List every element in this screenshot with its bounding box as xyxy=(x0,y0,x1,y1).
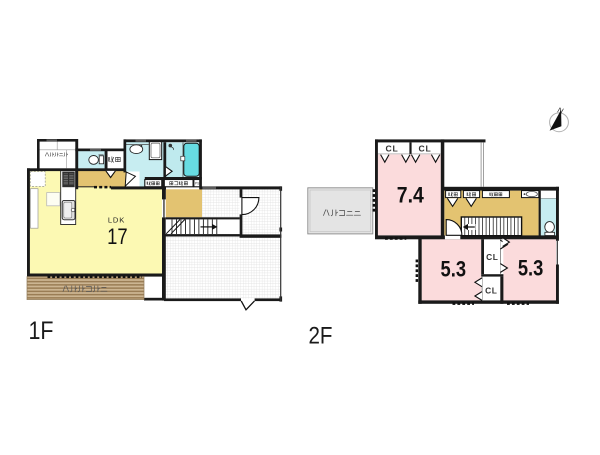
svg-text:17: 17 xyxy=(107,224,128,249)
svg-text:CL: CL xyxy=(485,285,497,295)
svg-text:CL: CL xyxy=(486,252,498,262)
svg-text:5.3: 5.3 xyxy=(518,256,544,281)
svg-text:1F: 1F xyxy=(29,318,54,345)
svg-text:LDK: LDK xyxy=(108,215,125,224)
svg-text:7.4: 7.4 xyxy=(397,183,425,208)
svg-text:CL: CL xyxy=(418,144,431,154)
svg-text:5.3: 5.3 xyxy=(441,256,467,281)
svg-text:CL: CL xyxy=(385,144,398,154)
svg-text:2F: 2F xyxy=(309,323,333,350)
